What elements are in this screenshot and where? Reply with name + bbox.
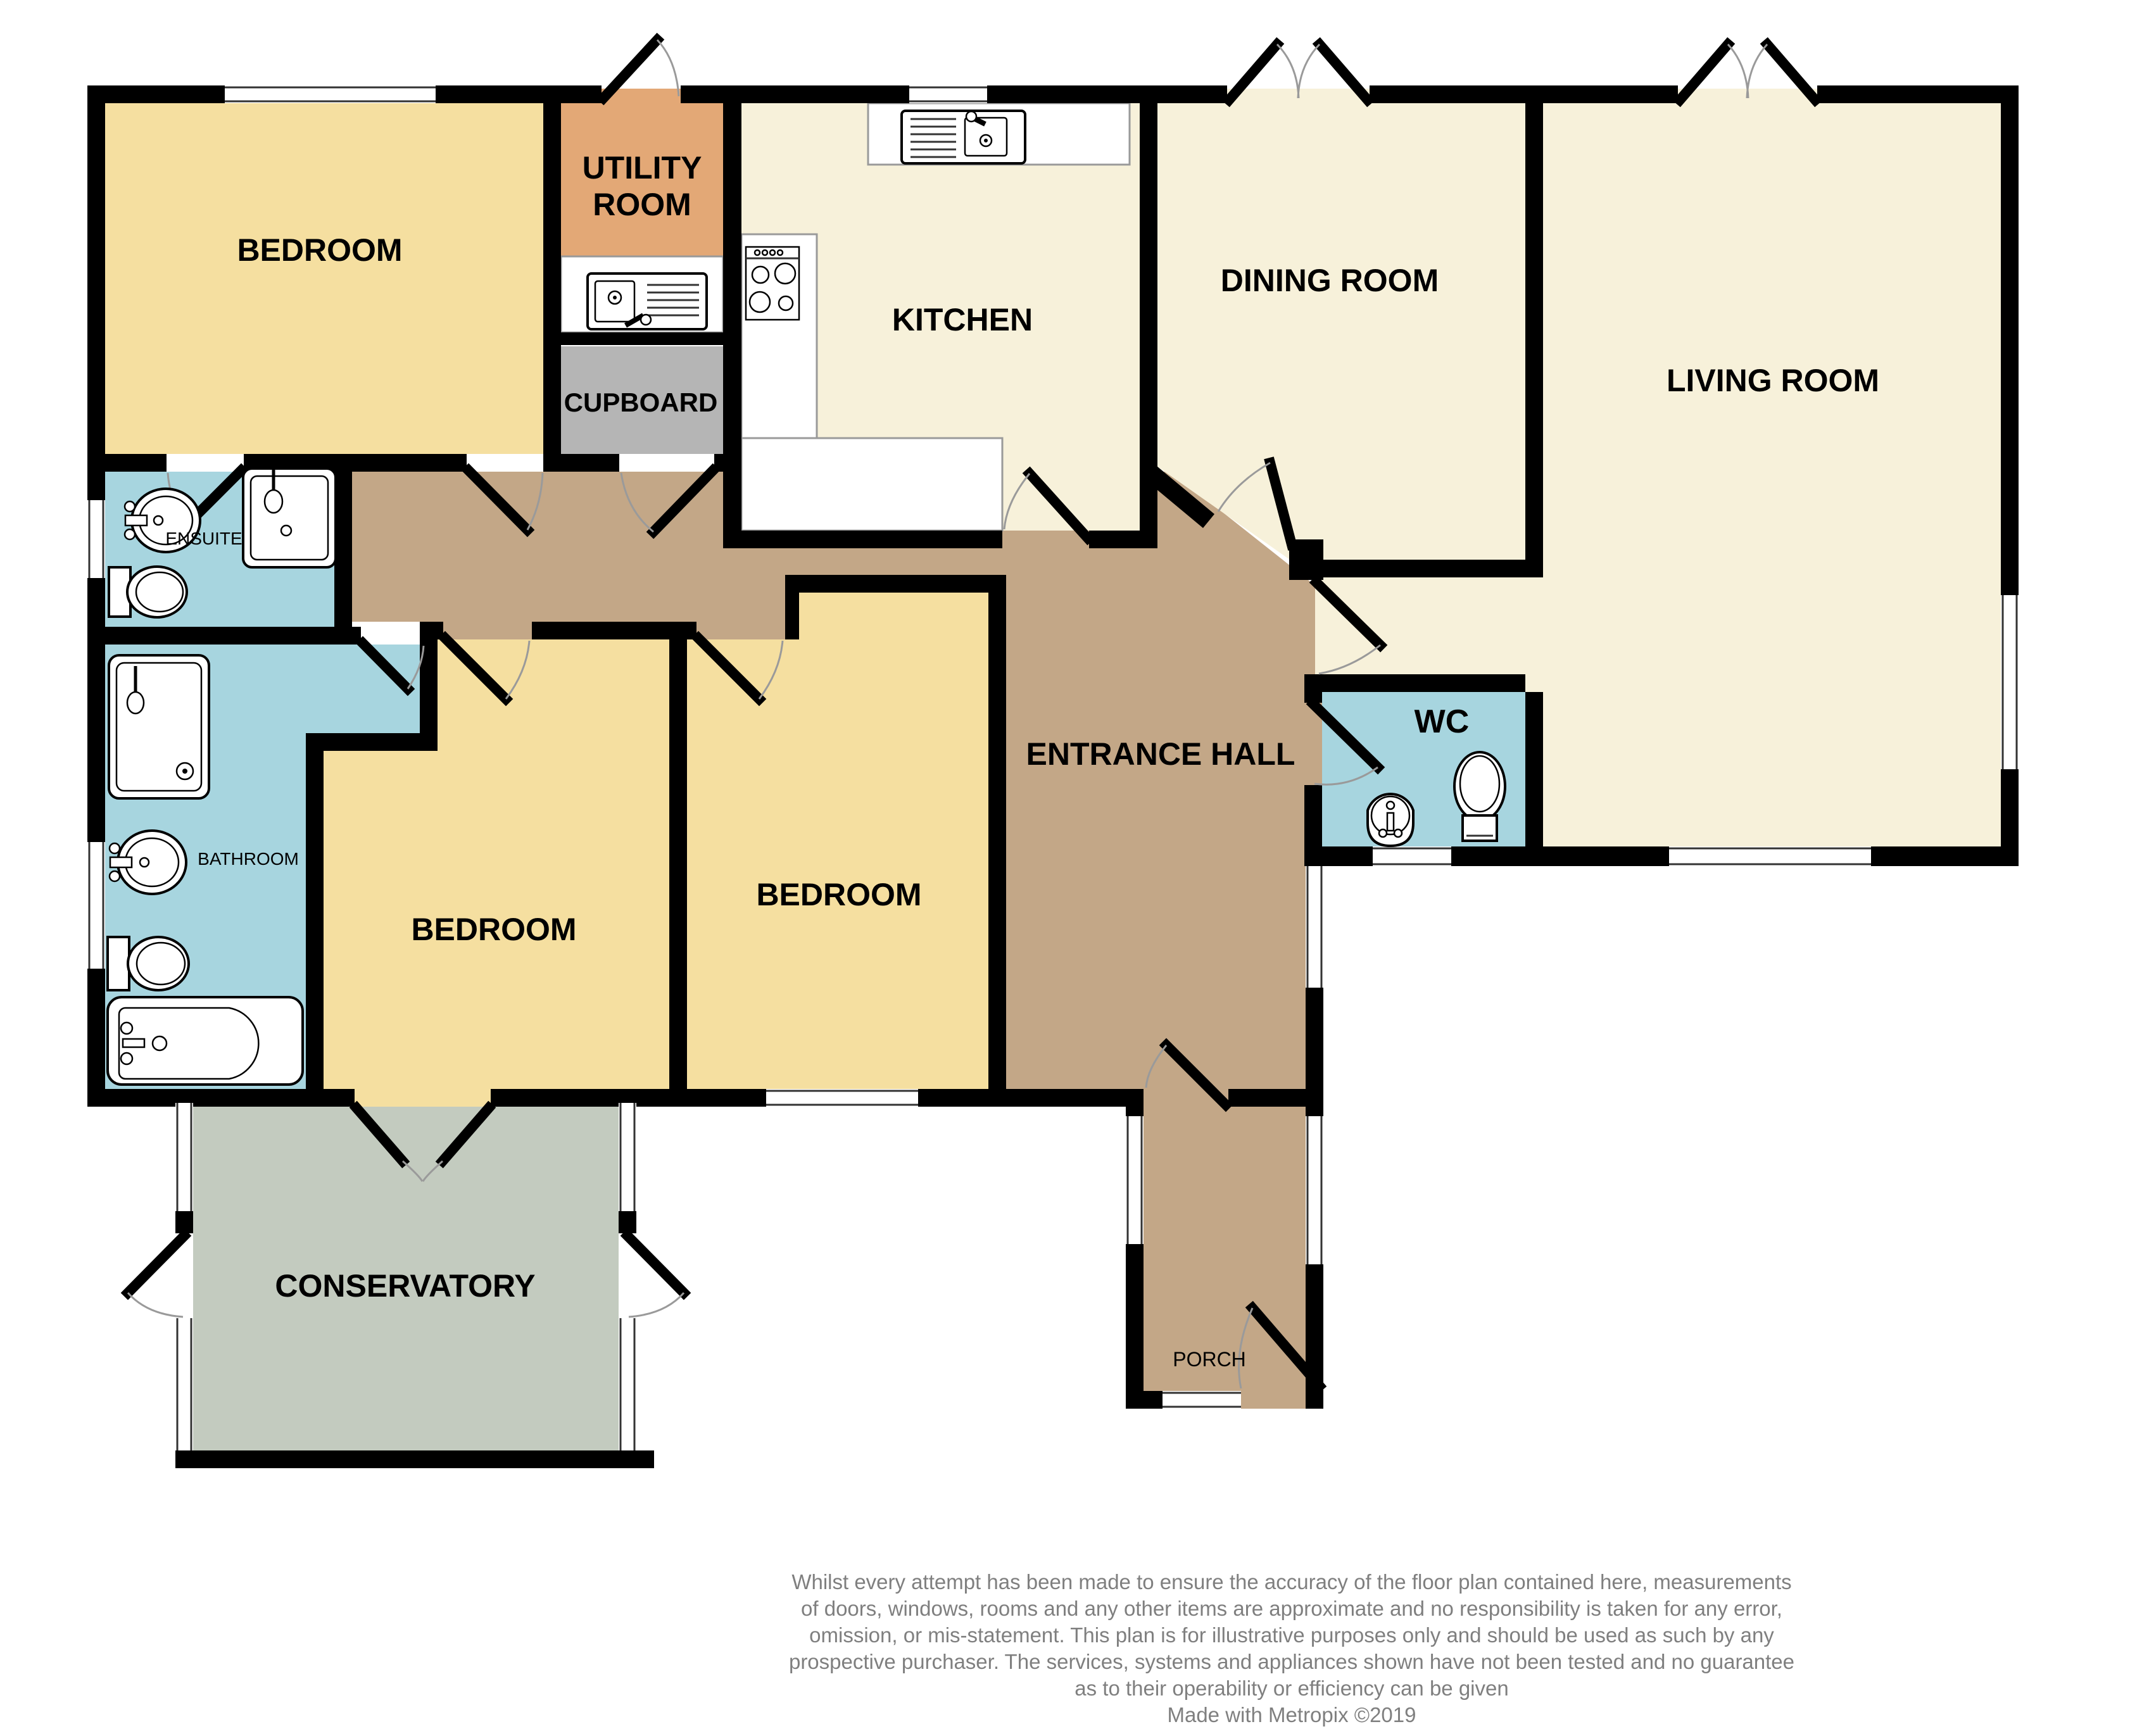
- kitchen-counter-bottom: [741, 438, 1002, 531]
- wc-toilet-icon: [1454, 752, 1505, 841]
- window: [1669, 846, 1871, 866]
- disclaimer-line: of doors, windows, rooms and any other i…: [801, 1597, 1782, 1620]
- disclaimer-line: prospective purchaser. The services, sys…: [789, 1650, 1794, 1673]
- label-ensuite: ENSUITE: [165, 529, 242, 548]
- threshold-conservatory-doors: [355, 1089, 491, 1107]
- label-conservatory: CONSERVATORY: [275, 1268, 535, 1304]
- door-arc: [629, 1293, 684, 1317]
- wc-sink-icon: [1368, 794, 1413, 846]
- label-dining: DINING ROOM: [1221, 263, 1439, 298]
- label-bedroom-2: BEDROOM: [756, 877, 921, 912]
- floor-living: [1543, 103, 2001, 846]
- window: [1373, 846, 1451, 866]
- door-conservatory-right: [627, 1236, 684, 1317]
- window: [619, 1103, 636, 1211]
- window: [87, 500, 105, 578]
- disclaimer-line: as to their operability or efficiency ca…: [1074, 1676, 1508, 1700]
- disclaimer-credit: Made with Metropix ©2019: [1167, 1703, 1416, 1727]
- door-arc: [128, 1293, 183, 1317]
- floorplan-drawing: BEDROOM UTILITY ROOM CUPBOARD KITCHEN DI…: [0, 0, 2130, 1736]
- window: [2001, 595, 2019, 769]
- stove-icon: [746, 247, 799, 320]
- label-bedroom-1: BEDROOM: [237, 232, 402, 268]
- door-arc: [657, 40, 679, 96]
- window: [225, 85, 436, 103]
- label-wc: WC: [1415, 703, 1470, 740]
- label-bedroom-3: BEDROOM: [411, 912, 576, 947]
- disclaimer: Whilst every attempt has been made to en…: [789, 1570, 1794, 1727]
- label-utility-line2: ROOM: [593, 187, 691, 222]
- utility-sink-icon: [588, 274, 707, 329]
- window: [1126, 1116, 1144, 1244]
- door-leaf: [128, 1236, 184, 1293]
- window: [1306, 1116, 1323, 1264]
- window: [766, 1089, 918, 1107]
- floor-bedroom-1: [105, 103, 543, 454]
- window: [1306, 866, 1323, 988]
- window: [87, 842, 105, 969]
- disclaimer-line: omission, or mis-statement. This plan is…: [809, 1623, 1774, 1647]
- label-cupboard: CUPBOARD: [564, 387, 718, 417]
- disclaimer-line: Whilst every attempt has been made to en…: [791, 1570, 1791, 1594]
- label-utility-line1: UTILITY: [583, 150, 702, 186]
- door-conservatory-left: [128, 1236, 184, 1317]
- window: [175, 1318, 193, 1450]
- window: [909, 85, 987, 103]
- ensuite-shower-icon: [243, 469, 336, 567]
- label-bathroom: BATHROOM: [198, 849, 299, 869]
- window: [175, 1103, 193, 1211]
- label-kitchen: KITCHEN: [892, 302, 1033, 337]
- door-leaf: [627, 1236, 684, 1293]
- label-porch: PORCH: [1173, 1348, 1246, 1371]
- bathroom-shower-icon: [109, 655, 209, 798]
- kitchen-sink-icon: [902, 111, 1025, 163]
- label-living: LIVING ROOM: [1667, 363, 1879, 398]
- ensuite-toilet-icon: [109, 567, 187, 617]
- floorplan-page: BEDROOM UTILITY ROOM CUPBOARD KITCHEN DI…: [0, 0, 2130, 1736]
- bathtub-icon: [108, 997, 303, 1085]
- bathroom-toilet-icon: [108, 937, 189, 990]
- label-entrance-hall: ENTRANCE HALL: [1026, 736, 1295, 772]
- window: [1163, 1391, 1241, 1409]
- window: [619, 1318, 636, 1450]
